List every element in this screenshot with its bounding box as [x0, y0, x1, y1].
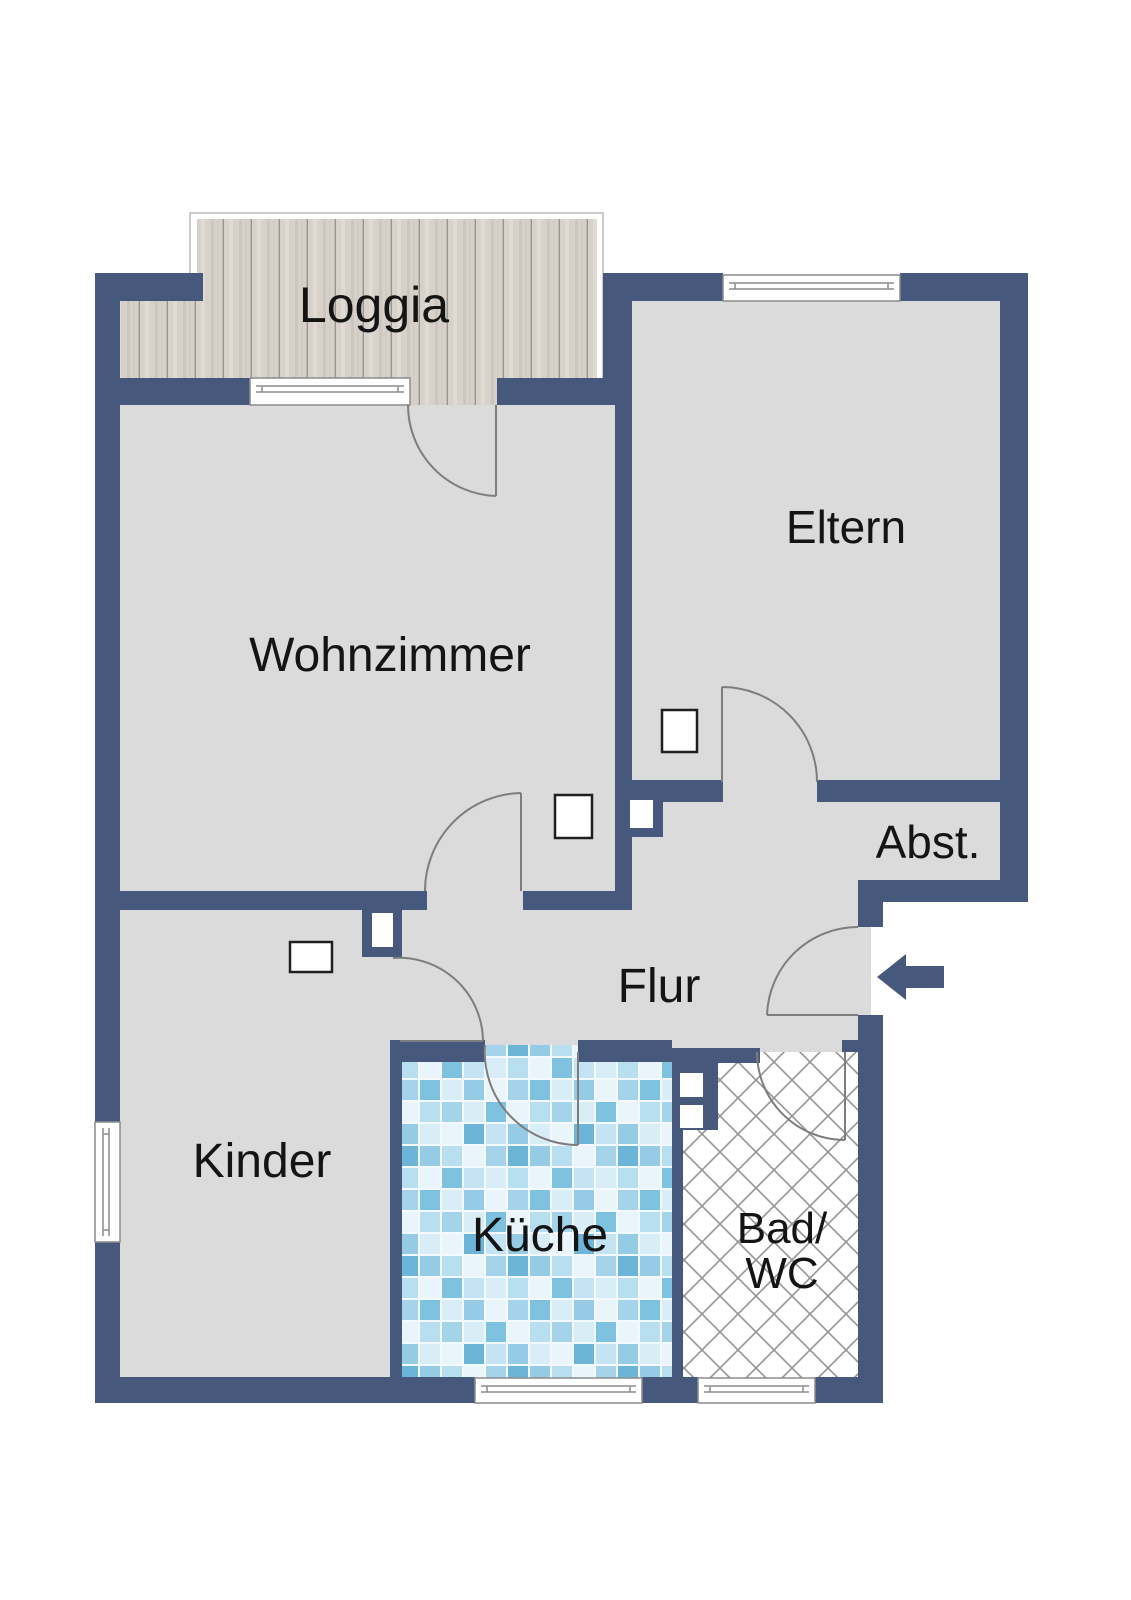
heater-box-kinder	[290, 942, 332, 972]
wall-kueche-top-left	[390, 1040, 485, 1062]
wall-bottom-middle	[642, 1377, 698, 1403]
window-loggia	[250, 378, 410, 405]
room-label-kueche: Küche	[472, 1209, 608, 1262]
wall-kueche-top-right	[578, 1040, 672, 1062]
room-label-wohnzimmer: Wohnzimmer	[249, 629, 531, 682]
room-label-bad-line2: WC	[745, 1249, 818, 1298]
loggia-doorway-deck	[408, 384, 497, 405]
heater-box-wohnzimmer	[555, 795, 592, 838]
wall-top-middle	[603, 273, 723, 301]
wall-entry-lower	[858, 1015, 883, 1403]
floorplan-page: Loggia Wohnzimmer Eltern Abst. Flur Kind…	[0, 0, 1131, 1600]
loggia-deck-left-arm	[120, 295, 197, 380]
floorplan-drawing: Loggia Wohnzimmer Eltern Abst. Flur Kind…	[0, 0, 1131, 1600]
heater-box-eltern	[662, 710, 697, 752]
wall-entry-upper-jamb	[858, 880, 883, 927]
shaft-box	[630, 800, 653, 828]
wall-bottom-left	[95, 1377, 475, 1403]
wall-kinder-kueche	[390, 1040, 402, 1380]
room-label-bad-line1: Bad/	[737, 1204, 828, 1253]
entry-arrow-icon	[877, 954, 944, 1000]
wall-left-upper	[95, 273, 120, 1122]
wall-abst-bottom	[858, 880, 1028, 902]
window-kinder	[95, 1122, 120, 1242]
wall-wohnzimmer-top-left	[120, 378, 250, 405]
room-label-loggia: Loggia	[299, 277, 449, 333]
wall-right	[1000, 273, 1028, 902]
window-bad	[698, 1378, 815, 1403]
window-eltern	[723, 275, 900, 301]
wall-bottom-right	[815, 1377, 883, 1403]
room-label-abstellraum: Abst.	[876, 816, 981, 868]
wall-wohnzimmer-top-right	[497, 378, 632, 405]
room-label-eltern: Eltern	[786, 501, 906, 553]
room-label-flur: Flur	[618, 960, 701, 1013]
shaft-box	[680, 1073, 703, 1097]
entry-doorway-outside-gap	[871, 927, 883, 1015]
room-label-kinder: Kinder	[193, 1135, 332, 1188]
shaft-box	[680, 1105, 703, 1128]
shaft-box	[372, 913, 393, 947]
wall-top-left	[95, 273, 203, 301]
window-kueche	[475, 1378, 642, 1403]
wall-bad-top	[672, 1048, 760, 1063]
wall-wohnzimmer-flur-right	[523, 891, 632, 910]
wall-eltern-abst	[817, 780, 1000, 802]
wall-bad-door-stub	[842, 1040, 858, 1052]
